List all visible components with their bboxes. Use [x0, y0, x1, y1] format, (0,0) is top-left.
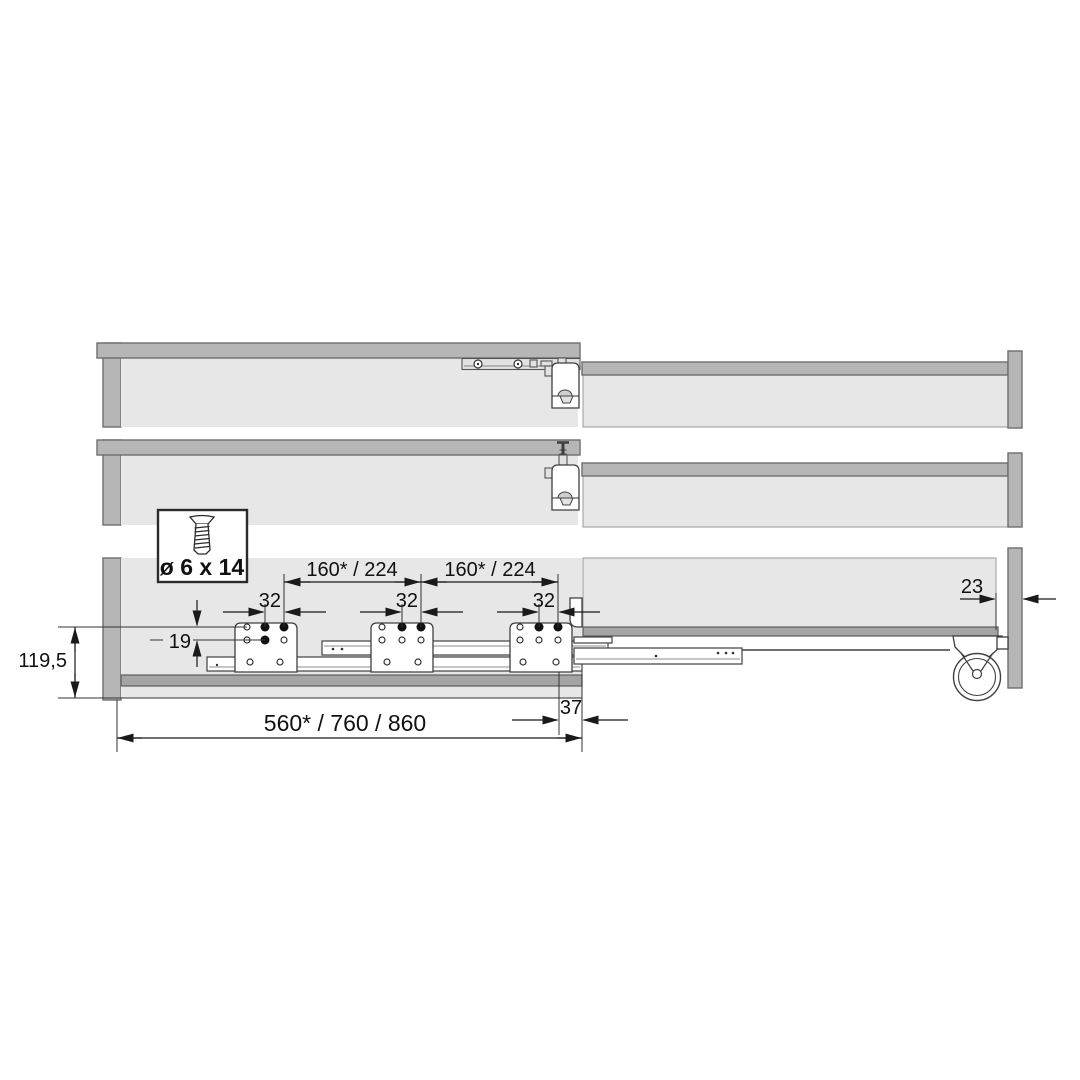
dim-spacing-right: 160* / 224 [444, 559, 535, 581]
mounting-bracket-3 [510, 623, 572, 673]
pullout-unit-top [582, 362, 1008, 375]
dim-rear-gap: 23 [961, 576, 983, 598]
technical-diagram-canvas: ø 6 x 14 160* / 224 160* / 224 32 32 32 [0, 0, 1080, 1080]
pullout-unit-body [583, 375, 1008, 427]
cabinet-bottom-panel [121, 675, 582, 686]
dim-total-height: 119,5 [18, 650, 67, 672]
pullout-unit-bottom [583, 627, 998, 636]
dim-spacing-left: 160* / 224 [306, 559, 397, 581]
dim-length-options: 560* / 760 / 860 [264, 710, 426, 736]
caster-wheel [953, 636, 1008, 701]
cabinet-top-panel [97, 440, 580, 455]
pullout-unit-body [583, 558, 996, 628]
dim-height-offset: 19 [169, 631, 191, 653]
dim-pitch-2: 32 [396, 590, 418, 612]
pullout-unit-side [1008, 453, 1022, 527]
pullout-unit-body [583, 476, 1008, 527]
pullout-unit-top [582, 463, 1008, 476]
cabinet-side-panel [103, 558, 121, 700]
section-top [97, 343, 1022, 428]
installation-drawing: ø 6 x 14 160* / 224 160* / 224 32 32 32 [0, 0, 1080, 1080]
dim-pitch-1: 32 [259, 590, 281, 612]
pullout-unit-side [1008, 351, 1022, 428]
screw-spec-box: ø 6 x 14 [158, 510, 247, 582]
mounting-bracket-1 [235, 623, 297, 673]
dim-front-offset: 37 [560, 697, 582, 719]
pullout-unit-side [1008, 548, 1022, 688]
mounting-bracket-2 [371, 623, 433, 673]
cabinet-top-panel [97, 343, 580, 358]
dim-pitch-3: 32 [533, 590, 555, 612]
screw-spec-label: ø 6 x 14 [160, 554, 245, 580]
